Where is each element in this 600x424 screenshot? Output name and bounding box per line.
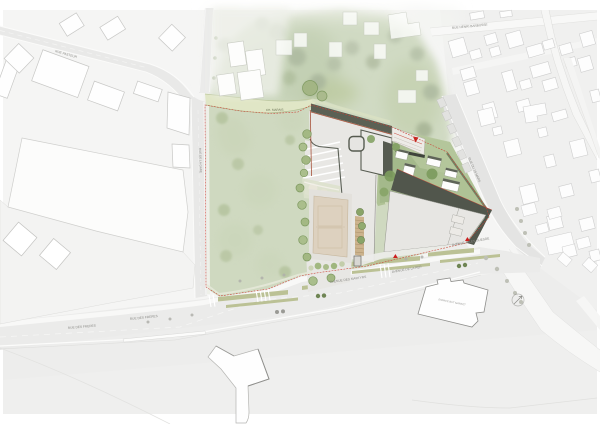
svg-text:CH. MARAIS: CH. MARAIS [266,108,284,112]
